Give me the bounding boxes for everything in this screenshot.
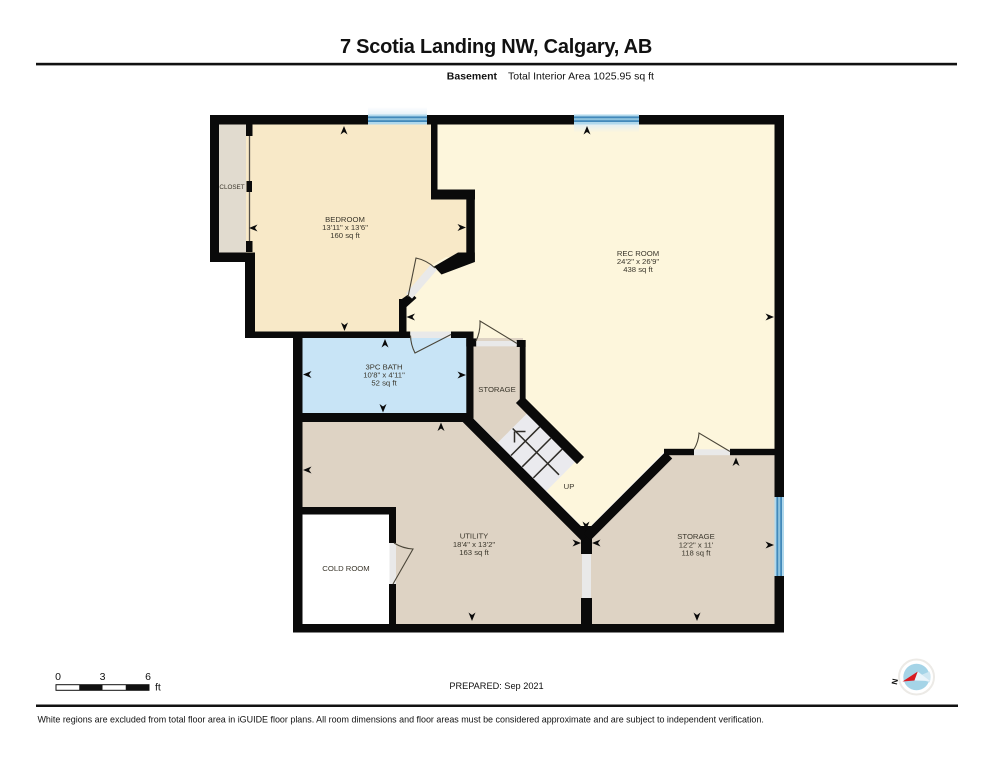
svg-text:7 Scotia Landing NW, Calgary,: 7 Scotia Landing NW, Calgary, AB [340, 36, 652, 58]
svg-text:3: 3 [100, 671, 106, 683]
svg-text:160 sq ft: 160 sq ft [330, 231, 360, 240]
svg-text:118 sq ft: 118 sq ft [682, 549, 712, 558]
svg-text:438 sq ft: 438 sq ft [623, 265, 653, 274]
svg-text:52 sq ft: 52 sq ft [371, 379, 397, 388]
svg-text:6: 6 [145, 671, 151, 683]
svg-text:STORAGE: STORAGE [478, 385, 515, 394]
svg-text:ft: ft [155, 682, 161, 694]
svg-text:0: 0 [55, 671, 61, 683]
svg-text:Total Interior Area 1025.95 sq: Total Interior Area 1025.95 sq ft [508, 71, 654, 83]
svg-text:COLD ROOM: COLD ROOM [322, 564, 369, 573]
svg-text:CLOSET: CLOSET [219, 184, 244, 191]
svg-text:163 sq ft: 163 sq ft [459, 548, 489, 557]
svg-text:UP: UP [564, 482, 575, 491]
svg-text:PREPARED: Sep 2021: PREPARED: Sep 2021 [449, 681, 543, 691]
svg-text:Basement: Basement [447, 71, 498, 83]
svg-text:White regions are excluded fro: White regions are excluded from total fl… [38, 715, 764, 725]
